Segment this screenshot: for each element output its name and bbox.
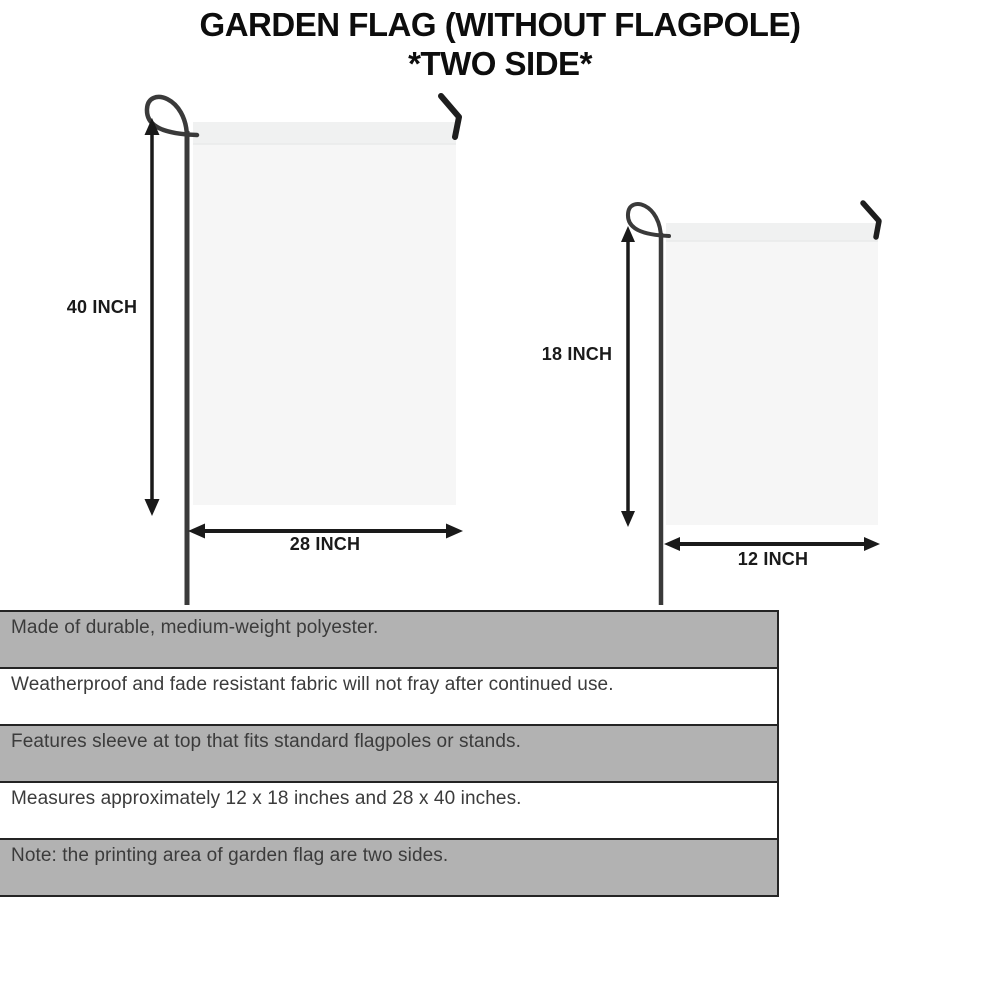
small-flag-height-arrow bbox=[621, 226, 635, 527]
small-flag-width-label: 12 INCH bbox=[708, 549, 838, 570]
large-flag bbox=[193, 122, 456, 505]
large-flag-height-label: 40 INCH bbox=[37, 297, 167, 318]
small-flag-height-label: 18 INCH bbox=[512, 344, 642, 365]
garden-flag-size-guide: GARDEN FLAG (WITHOUT FLAGPOLE) *TWO SIDE… bbox=[0, 0, 1000, 1000]
large-flag-group bbox=[145, 96, 464, 605]
feature-row-sleeve: Features sleeve at top that fits standar… bbox=[0, 724, 779, 783]
feature-list: Made of durable, medium-weight polyester… bbox=[0, 610, 779, 897]
feature-row-material: Made of durable, medium-weight polyester… bbox=[0, 610, 779, 669]
small-flag bbox=[666, 223, 878, 525]
feature-row-note: Note: the printing area of garden flag a… bbox=[0, 838, 779, 897]
large-flag-width-label: 28 INCH bbox=[260, 534, 390, 555]
feature-row-measures: Measures approximately 12 x 18 inches an… bbox=[0, 781, 779, 840]
small-flagpole-loop-icon bbox=[628, 204, 669, 239]
large-flag-sleeve bbox=[193, 122, 456, 144]
feature-row-weatherproof: Weatherproof and fade resistant fabric w… bbox=[0, 667, 779, 726]
small-flag-group bbox=[621, 203, 880, 605]
small-flag-sleeve bbox=[666, 223, 878, 241]
